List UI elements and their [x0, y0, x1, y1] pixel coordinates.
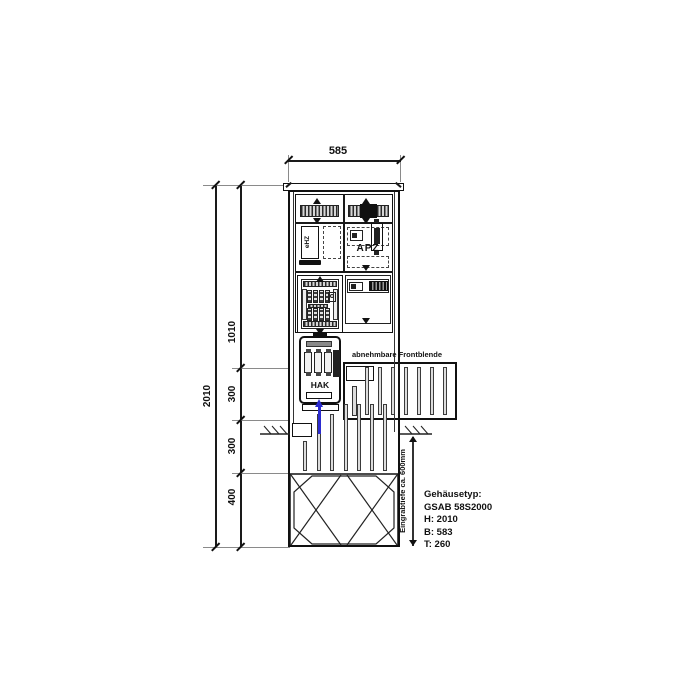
meter-caption-block	[299, 260, 321, 265]
arrow-up-icon	[362, 198, 370, 204]
vent-slat-icon	[443, 367, 447, 415]
fuse-holder-icon	[304, 352, 312, 373]
spec-title: Gehäusetyp:	[424, 489, 519, 502]
dim-line-total-height	[215, 185, 217, 547]
cable-entry-plate	[292, 423, 312, 437]
apz-small-module-dot	[352, 233, 357, 238]
fuse-holder-icon	[324, 352, 332, 373]
vent-slat-icon	[370, 404, 374, 471]
hlak-block	[369, 281, 388, 291]
busbar-left	[300, 205, 339, 217]
busbar-label-block	[360, 204, 377, 218]
fuse-breaker-icon	[307, 290, 312, 303]
arrow-down-icon	[409, 540, 417, 546]
foundation-block	[285, 470, 405, 550]
mounting-rail-bottom	[303, 321, 337, 327]
fuse-breaker-icon	[313, 290, 318, 303]
hak-top-bar	[306, 341, 332, 347]
hak-component-dark	[333, 350, 340, 377]
fuse-breaker-icon	[307, 308, 312, 321]
reserve-slot-dashed	[323, 226, 341, 259]
cabinet-technical-drawing: 2010 1010 300 300 400 585 eHZ APZ	[0, 0, 700, 700]
arrow-down-icon	[362, 218, 370, 224]
terminal-box-dot	[351, 284, 356, 289]
supply-cable-blue	[318, 407, 321, 434]
fuse-cap	[306, 349, 311, 353]
vent-slat-icon	[430, 367, 434, 415]
dim-label-total-height: 2010	[202, 381, 214, 411]
meter-device-label: eHZ	[304, 227, 316, 257]
fuse-holder-icon	[314, 352, 322, 373]
fuse-breaker-icon	[313, 308, 318, 321]
hak-label: HAK	[305, 380, 335, 390]
spec-block: Gehäusetyp: GSAB 58S2000 H: 2010 B: 583 …	[424, 489, 519, 552]
fuse-cap	[316, 349, 321, 353]
apz-label: APZ	[351, 243, 385, 254]
arrow-up-icon	[409, 436, 417, 442]
cabinet-wall-inner-left	[293, 192, 294, 432]
dim-label-400: 400	[227, 482, 239, 512]
panel-divider-horizontal	[295, 271, 393, 273]
fuse-breaker-icon	[325, 308, 330, 321]
dim-line-width	[288, 160, 401, 162]
apz-din-device-pin	[374, 219, 379, 223]
arrow-up-icon	[313, 198, 321, 204]
dim-line-burial-depth	[412, 437, 414, 546]
vent-slat-icon	[330, 414, 334, 471]
arrow-down-icon	[362, 265, 370, 271]
apz-din-device-body	[374, 228, 380, 244]
fuse-cap	[326, 372, 331, 376]
front-panel-note: abnehmbare Frontblende	[352, 350, 462, 359]
vent-slat-icon	[383, 404, 387, 471]
cabinet-edge-overlay	[398, 362, 400, 420]
spec-height: H: 2010	[424, 514, 519, 527]
arrow-up-icon	[316, 276, 324, 282]
terminal-circle-icon	[330, 294, 334, 298]
spec-depth: T: 260	[424, 539, 519, 552]
fuse-breaker-icon	[319, 308, 324, 321]
dim-label-300-upper: 300	[227, 379, 239, 409]
spec-width: B: 583	[424, 527, 519, 540]
fuse-cap	[326, 349, 331, 353]
hak-cable-slot	[306, 392, 332, 399]
panel-divider-vertical	[343, 194, 345, 272]
vent-slat-icon	[391, 367, 395, 415]
vent-slat-icon	[378, 367, 382, 415]
arrow-down-icon	[313, 218, 321, 224]
vent-slat-icon	[404, 367, 408, 415]
ground-hatch-left	[258, 424, 292, 438]
dim-label-1010: 1010	[227, 317, 239, 347]
dim-label-300-lower: 300	[227, 431, 239, 461]
vent-slat-icon	[417, 367, 421, 415]
fuse-cap	[316, 372, 321, 376]
front-panel-window	[346, 366, 374, 381]
vent-slat-icon	[365, 367, 369, 415]
arrow-down-icon	[362, 318, 370, 324]
vent-slat-icon	[303, 441, 307, 471]
fuse-breaker-icon	[319, 290, 324, 303]
fuse-cap	[306, 372, 311, 376]
spec-model: GSAB 58S2000	[424, 502, 519, 515]
burial-depth-label: Eingrabtiefe ca. 600mm	[398, 436, 410, 546]
dim-label-width: 585	[320, 145, 356, 157]
vent-slat-icon	[357, 404, 361, 471]
vent-slat-icon	[344, 404, 348, 471]
cable-arrow-icon	[315, 399, 323, 407]
